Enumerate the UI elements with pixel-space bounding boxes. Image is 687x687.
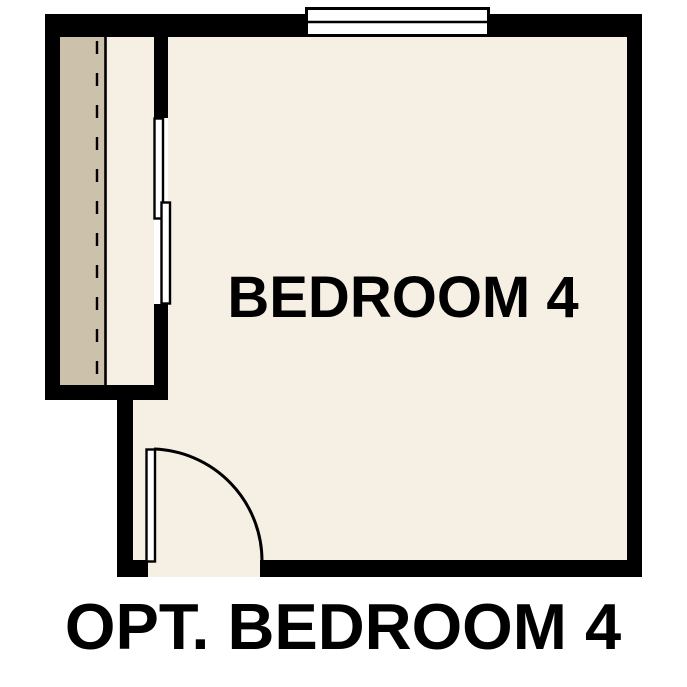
top-wall-right-segment xyxy=(488,14,642,37)
entry-side-wall xyxy=(117,400,133,577)
left-wall xyxy=(45,14,60,400)
window-symbol xyxy=(306,9,489,36)
floor-plan-drawing: BEDROOM 4 OPT. BEDROOM 4 xyxy=(0,0,687,687)
door-leaf xyxy=(147,450,156,562)
bottom-wall-right-segment xyxy=(260,560,642,577)
bypass-door-panel-right xyxy=(162,203,171,304)
closet-bypass-doors-symbol xyxy=(155,119,171,304)
closet-front-wall-lower xyxy=(154,304,168,400)
bottom-wall-left-stub xyxy=(117,560,148,577)
top-wall-left-segment xyxy=(45,14,307,37)
room-label: BEDROOM 4 xyxy=(227,265,578,330)
closet-shelf xyxy=(60,37,106,385)
closet-front-wall-upper xyxy=(154,37,168,118)
plan-caption: OPT. BEDROOM 4 xyxy=(65,590,621,663)
right-wall xyxy=(627,14,642,577)
floor-plan-canvas: BEDROOM 4 OPT. BEDROOM 4 xyxy=(0,0,687,687)
closet-bottom-wall xyxy=(45,385,168,400)
